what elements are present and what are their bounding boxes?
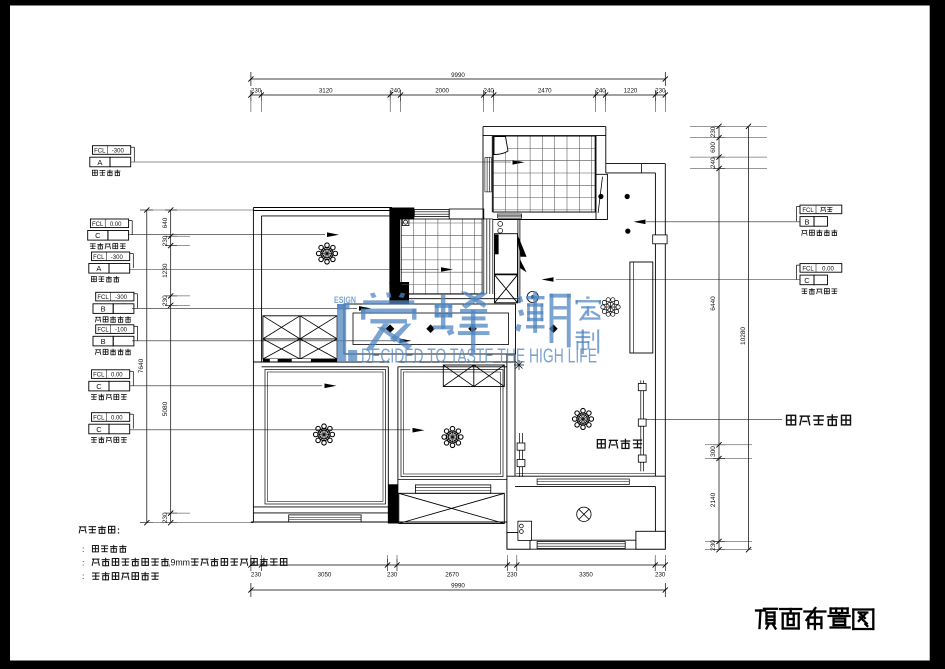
svg-text:FCL: FCL <box>93 255 105 261</box>
svg-text:C: C <box>95 231 101 240</box>
svg-text:2470: 2470 <box>538 88 552 95</box>
svg-text:ESIGN: ESIGN <box>334 295 356 305</box>
svg-text:240: 240 <box>484 88 495 95</box>
svg-text:B: B <box>101 337 106 346</box>
svg-text:0.00: 0.00 <box>110 222 122 228</box>
svg-text:240: 240 <box>390 88 401 95</box>
svg-text:-300: -300 <box>115 295 128 301</box>
svg-text:3350: 3350 <box>579 572 593 579</box>
svg-text:FCL: FCL <box>93 373 105 379</box>
svg-text:A: A <box>97 158 102 167</box>
svg-text:230: 230 <box>710 126 717 137</box>
svg-text:230: 230 <box>507 572 518 579</box>
svg-text:B: B <box>804 217 809 226</box>
svg-text:C: C <box>96 425 102 434</box>
svg-text:0.00: 0.00 <box>822 266 834 272</box>
svg-text:230: 230 <box>251 88 262 95</box>
svg-text:300: 300 <box>710 446 717 457</box>
svg-text:230: 230 <box>162 295 169 306</box>
svg-text:FCL: FCL <box>802 266 814 272</box>
svg-text:C: C <box>96 382 102 391</box>
svg-text:C: C <box>804 276 810 285</box>
svg-text:A: A <box>96 264 101 273</box>
svg-text:230: 230 <box>387 572 398 579</box>
svg-text:B: B <box>101 305 106 314</box>
svg-text:240: 240 <box>595 88 606 95</box>
svg-text:FCL: FCL <box>94 149 106 155</box>
svg-text:230: 230 <box>162 512 169 523</box>
svg-text:6440: 6440 <box>710 296 717 311</box>
svg-text:2000: 2000 <box>435 88 449 95</box>
svg-text:3050: 3050 <box>318 572 332 579</box>
svg-text::: : <box>117 526 120 536</box>
svg-text:FCL: FCL <box>92 222 104 228</box>
svg-text:600: 600 <box>710 142 717 153</box>
svg-text::: : <box>82 558 84 568</box>
svg-text:-300: -300 <box>112 149 125 155</box>
svg-text:2140: 2140 <box>710 492 717 507</box>
svg-text:230: 230 <box>655 88 666 95</box>
svg-text:230: 230 <box>655 572 666 579</box>
svg-text:3120: 3120 <box>319 88 333 95</box>
svg-text:640: 640 <box>162 217 169 228</box>
svg-text:9990: 9990 <box>451 72 465 79</box>
svg-text:-300: -300 <box>111 255 124 261</box>
svg-text:2670: 2670 <box>445 572 459 579</box>
svg-text:-100: -100 <box>115 328 128 334</box>
svg-text:FCL: FCL <box>93 416 105 422</box>
svg-text:9990: 9990 <box>451 583 465 590</box>
svg-text:230: 230 <box>162 235 169 246</box>
svg-text::: : <box>82 571 84 581</box>
svg-text:7640: 7640 <box>138 358 145 373</box>
svg-text:10280: 10280 <box>740 327 747 345</box>
svg-text:0.00: 0.00 <box>111 373 123 379</box>
svg-text:1220: 1220 <box>624 88 638 95</box>
svg-text:DECIDED TO TASTE THE HIGH LIFE: DECIDED TO TASTE THE HIGH LIFE <box>361 345 597 368</box>
svg-text:240: 240 <box>710 157 717 168</box>
svg-text:230: 230 <box>251 572 262 579</box>
svg-text:FCL: FCL <box>97 295 109 301</box>
svg-text:1230: 1230 <box>162 263 169 278</box>
svg-text:,9mm: ,9mm <box>168 557 190 567</box>
svg-text:FCL: FCL <box>802 208 814 214</box>
svg-text:FCL: FCL <box>97 328 109 334</box>
svg-text::: : <box>82 544 84 554</box>
svg-text:5080: 5080 <box>162 401 169 416</box>
svg-text:0.00: 0.00 <box>111 416 123 422</box>
